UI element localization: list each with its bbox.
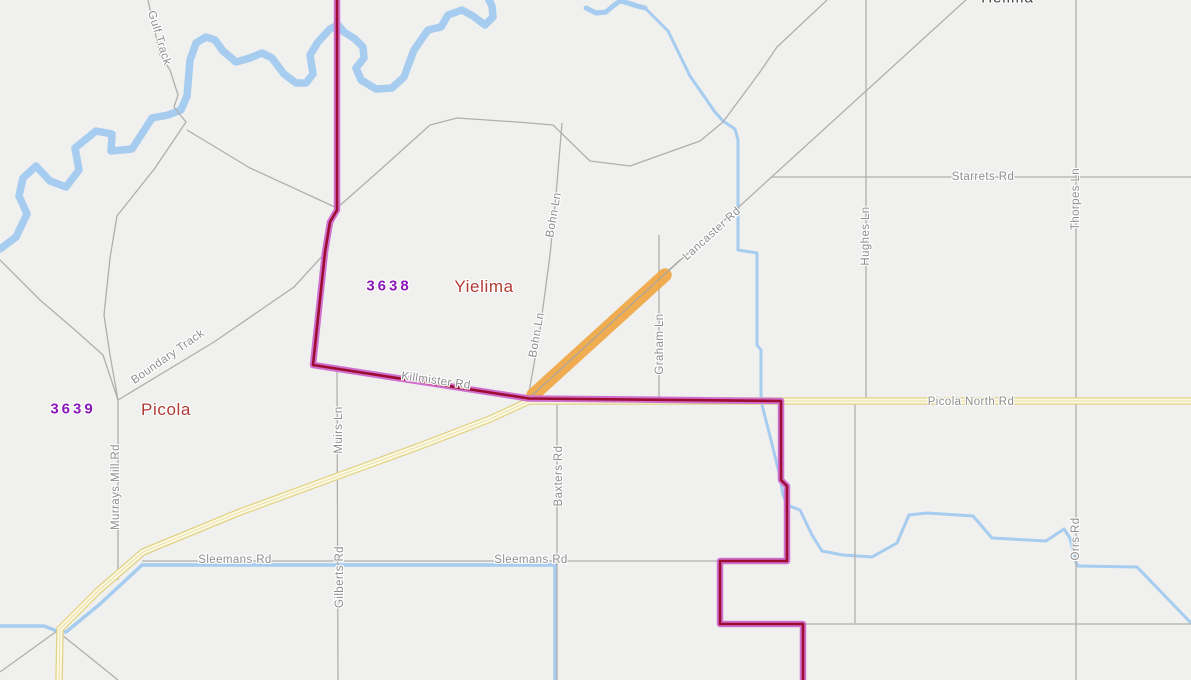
map-canvas[interactable] — [0, 0, 1191, 680]
map-viewport[interactable]: Gulf TrackYielimaStarrets RdThorpes LnHu… — [0, 0, 1191, 680]
